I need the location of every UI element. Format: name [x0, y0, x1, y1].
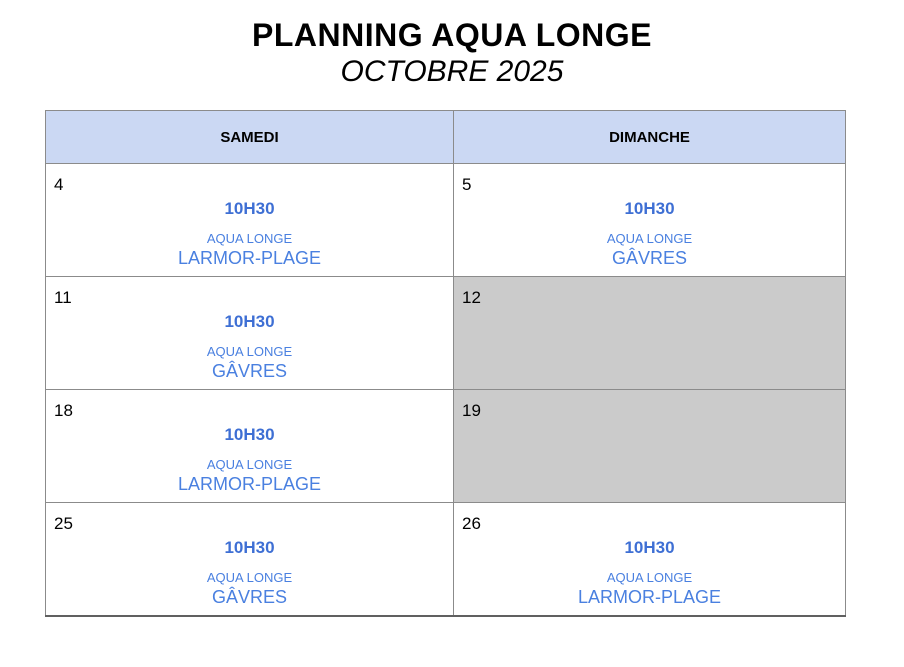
session-activity: AQUA LONGE — [46, 457, 453, 472]
session-time: 10H30 — [46, 538, 453, 558]
calendar-cell-oct-19: 19 — [454, 390, 846, 503]
table-row: 25 10H30 AQUA LONGE GÂVRES 26 10H30 AQUA… — [46, 503, 846, 617]
session-time: 10H30 — [46, 199, 453, 219]
day-number: 25 — [46, 503, 453, 534]
day-number: 26 — [454, 503, 845, 534]
session-location: LARMOR-PLAGE — [454, 586, 845, 608]
session-activity: AQUA LONGE — [46, 231, 453, 246]
header-row: SAMEDI DIMANCHE — [46, 111, 846, 164]
session-info: 10H30 AQUA LONGE LARMOR-PLAGE — [454, 538, 845, 608]
session-time: 10H30 — [454, 538, 845, 558]
page-title: PLANNING AQUA LONGE — [0, 16, 904, 54]
session-location: GÂVRES — [454, 247, 845, 269]
day-number: 19 — [454, 390, 845, 421]
planning-document: PLANNING AQUA LONGE OCTOBRE 2025 SAMEDI … — [0, 0, 904, 667]
calendar-cell-oct-18: 18 10H30 AQUA LONGE LARMOR-PLAGE — [46, 390, 454, 503]
planning-table: SAMEDI DIMANCHE 4 10H30 AQUA LONGE LARMO… — [45, 110, 846, 617]
session-info: 10H30 AQUA LONGE GÂVRES — [46, 538, 453, 608]
session-activity: AQUA LONGE — [46, 570, 453, 585]
session-activity: AQUA LONGE — [454, 231, 845, 246]
table-row: 4 10H30 AQUA LONGE LARMOR-PLAGE 5 10H30 … — [46, 164, 846, 277]
session-activity: AQUA LONGE — [46, 344, 453, 359]
day-number: 18 — [46, 390, 453, 421]
table-row: 11 10H30 AQUA LONGE GÂVRES 12 — [46, 277, 846, 390]
session-activity: AQUA LONGE — [454, 570, 845, 585]
calendar-cell-oct-5: 5 10H30 AQUA LONGE GÂVRES — [454, 164, 846, 277]
session-location: GÂVRES — [46, 360, 453, 382]
column-header-dimanche: DIMANCHE — [454, 111, 846, 164]
calendar-cell-oct-11: 11 10H30 AQUA LONGE GÂVRES — [46, 277, 454, 390]
session-info: 10H30 AQUA LONGE GÂVRES — [46, 312, 453, 382]
session-info: 10H30 AQUA LONGE LARMOR-PLAGE — [46, 199, 453, 269]
calendar-cell-oct-4: 4 10H30 AQUA LONGE LARMOR-PLAGE — [46, 164, 454, 277]
session-time: 10H30 — [454, 199, 845, 219]
page-subtitle: OCTOBRE 2025 — [0, 54, 904, 90]
session-time: 10H30 — [46, 425, 453, 445]
day-number: 11 — [46, 277, 453, 308]
session-location: LARMOR-PLAGE — [46, 473, 453, 495]
day-number: 12 — [454, 277, 845, 308]
session-info: 10H30 AQUA LONGE LARMOR-PLAGE — [46, 425, 453, 495]
session-location: LARMOR-PLAGE — [46, 247, 453, 269]
title-block: PLANNING AQUA LONGE OCTOBRE 2025 — [0, 0, 904, 90]
table-row: 18 10H30 AQUA LONGE LARMOR-PLAGE 19 — [46, 390, 846, 503]
calendar-cell-oct-25: 25 10H30 AQUA LONGE GÂVRES — [46, 503, 454, 617]
day-number: 4 — [46, 164, 453, 195]
calendar-cell-oct-26: 26 10H30 AQUA LONGE LARMOR-PLAGE — [454, 503, 846, 617]
day-number: 5 — [454, 164, 845, 195]
calendar-cell-oct-12: 12 — [454, 277, 846, 390]
session-location: GÂVRES — [46, 586, 453, 608]
session-info: 10H30 AQUA LONGE GÂVRES — [454, 199, 845, 269]
column-header-samedi: SAMEDI — [46, 111, 454, 164]
session-time: 10H30 — [46, 312, 453, 332]
